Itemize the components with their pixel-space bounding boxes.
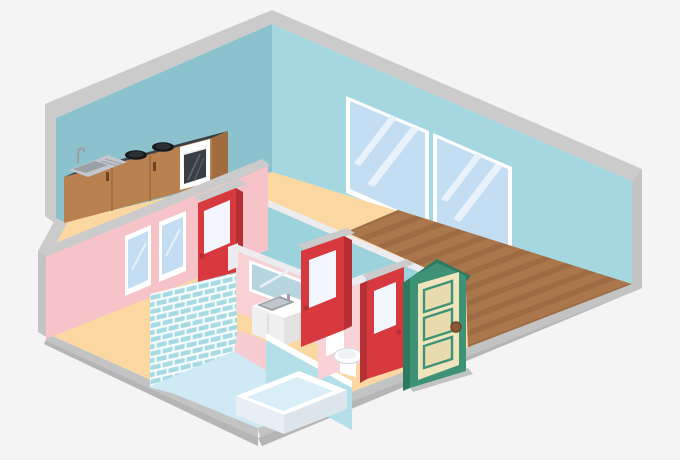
door-glass	[374, 282, 396, 334]
door-knob	[303, 305, 308, 310]
wall-end-cap	[632, 169, 642, 288]
illustration-stage	[0, 0, 680, 460]
cabinet-handle	[106, 172, 109, 181]
door-side	[344, 236, 352, 330]
wall-end-cap	[45, 104, 56, 224]
door-knob	[396, 329, 401, 334]
door-knob	[451, 322, 461, 332]
wall-end-cap	[228, 243, 238, 271]
small-window-2	[159, 211, 186, 282]
green-entry-door	[403, 259, 473, 392]
door-knob	[199, 253, 204, 258]
vanity-faucet	[287, 294, 290, 300]
cabinet-handle	[153, 162, 156, 171]
stove-burner-inner	[156, 143, 171, 149]
window-glass	[162, 217, 183, 275]
small-window-1	[125, 225, 151, 296]
stove-burner-inner	[129, 151, 144, 157]
door-frame-side	[403, 278, 410, 391]
door-side	[360, 281, 367, 383]
toilet-seat	[338, 350, 356, 359]
isometric-apartment-illustration	[0, 0, 680, 460]
